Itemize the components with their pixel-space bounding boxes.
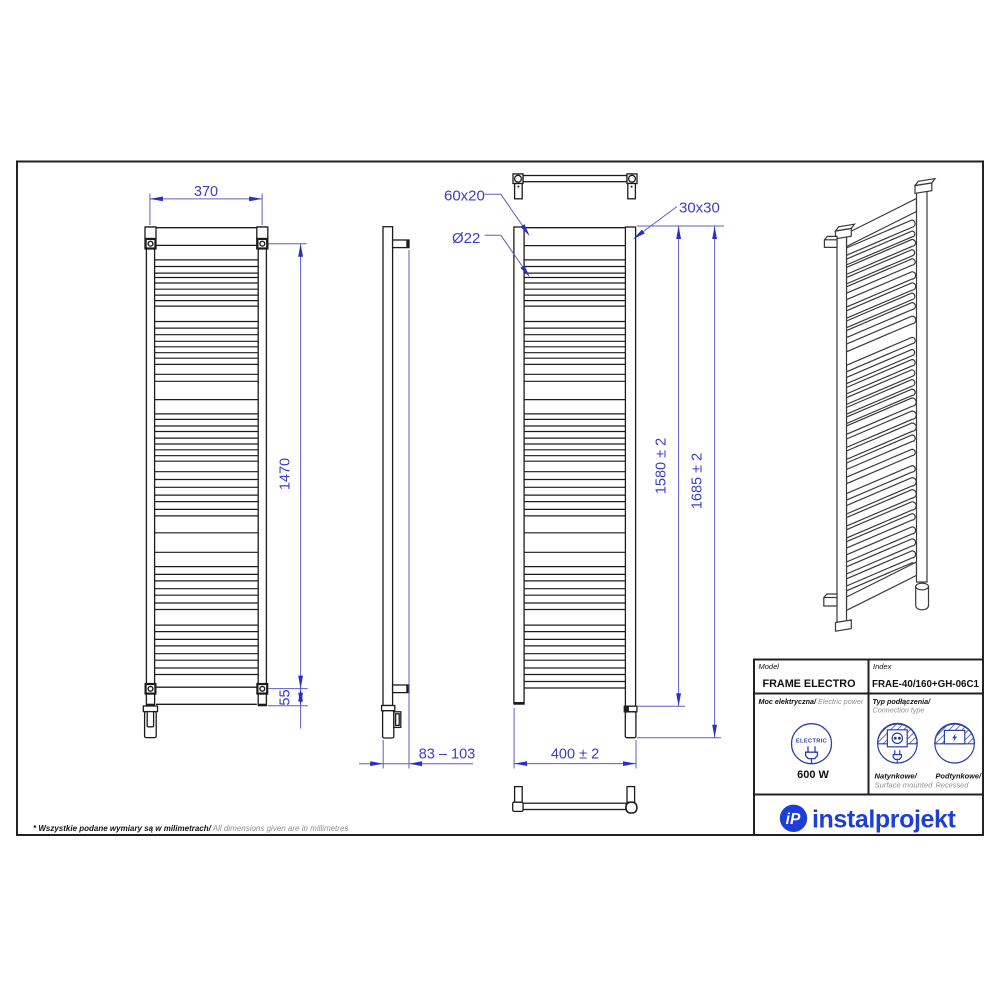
svg-text:instalprojekt: instalprojekt (812, 806, 957, 834)
svg-text:1685 ± 2: 1685 ± 2 (690, 453, 706, 509)
svg-text:Index: Index (873, 662, 892, 671)
svg-text:Model: Model (759, 662, 780, 671)
svg-text:370: 370 (194, 184, 218, 200)
svg-text:FRAE-40/160+GH-06C1: FRAE-40/160+GH-06C1 (872, 679, 980, 690)
svg-text:ELECTRIC: ELECTRIC (796, 739, 827, 745)
svg-text:400 ± 2: 400 ± 2 (551, 747, 599, 763)
svg-text:Podtynkowe/: Podtynkowe/ (936, 772, 983, 781)
svg-text:iP: iP (786, 811, 801, 828)
svg-text:83 – 103: 83 – 103 (419, 747, 475, 763)
svg-text:Connection type: Connection type (873, 706, 925, 715)
svg-text:600 W: 600 W (797, 769, 829, 781)
svg-text:Surface mounted: Surface mounted (875, 781, 934, 790)
svg-text:* Wszystkie podane wymiary są: * Wszystkie podane wymiary są w milimetr… (33, 824, 348, 833)
svg-text:1470: 1470 (278, 458, 294, 490)
svg-text:30x30: 30x30 (679, 200, 720, 217)
svg-text:Ø22: Ø22 (452, 230, 480, 247)
svg-text:Recessed: Recessed (936, 781, 970, 790)
svg-text:1580 ± 2: 1580 ± 2 (654, 438, 670, 494)
svg-text:Moc elektryczna/ Electric powe: Moc elektryczna/ Electric power (759, 697, 864, 706)
svg-text:60x20: 60x20 (444, 188, 485, 205)
svg-text:FRAME ELECTRO: FRAME ELECTRO (763, 678, 856, 690)
svg-text:Natynkowe/: Natynkowe/ (875, 772, 918, 781)
svg-text:55: 55 (278, 689, 294, 705)
